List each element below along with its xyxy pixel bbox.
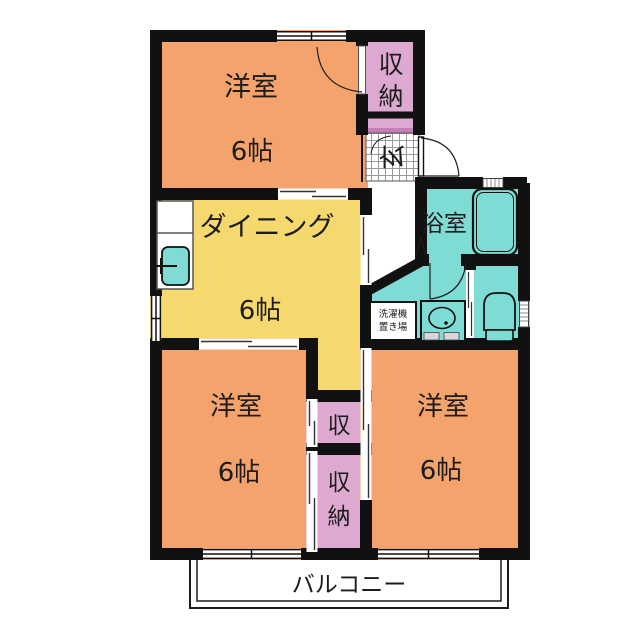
bedroom-top-door-panel bbox=[359, 46, 366, 94]
window-bottom-left bbox=[203, 549, 301, 559]
slide-closet-bottom-door bbox=[307, 451, 318, 552]
bedroom-top-size: 6帖 bbox=[231, 137, 274, 167]
closet-top-label-1: 収 bbox=[378, 50, 403, 79]
washing-machine-area bbox=[370, 302, 416, 340]
bathroom-label: 浴室 bbox=[421, 211, 467, 237]
floor-plan-page: 洋室 6帖 収 納 玄 ダイニング 6帖 浴室 洗濯機 置き場 洋室 6帖 収 … bbox=[0, 0, 640, 640]
slide-closet-mid-door bbox=[307, 399, 318, 447]
slide-bedroomright-door bbox=[361, 348, 372, 500]
laundry-label-1: 洗濯機 bbox=[379, 308, 408, 320]
laundry-label-2: 置き場 bbox=[379, 321, 408, 333]
washbasin bbox=[421, 301, 465, 341]
dining-label: ダイニング bbox=[200, 212, 335, 243]
closet-top-label-2: 納 bbox=[378, 82, 403, 111]
dining-size: 6帖 bbox=[239, 296, 282, 326]
closet-mid-label: 収 bbox=[328, 413, 351, 439]
slide-toilet-door bbox=[466, 270, 474, 338]
window-toilet bbox=[520, 301, 529, 327]
bedroom-left-label: 洋室 bbox=[210, 392, 262, 422]
window-top bbox=[277, 31, 346, 41]
entry-door-leaf bbox=[419, 137, 424, 176]
window-bathroom bbox=[483, 179, 503, 188]
entrance-step-edge bbox=[366, 128, 419, 133]
entrance-label: 玄 bbox=[379, 144, 409, 170]
balcony-label: バルコニー bbox=[292, 572, 407, 598]
bedroom-right-label: 洋室 bbox=[417, 392, 469, 422]
toilet-tank bbox=[486, 330, 513, 341]
toilet bbox=[484, 293, 515, 341]
bedroom-left-size: 6帖 bbox=[218, 458, 261, 488]
bedroom-right-size: 6帖 bbox=[420, 456, 463, 486]
bedroom-top-label: 洋室 bbox=[224, 72, 278, 103]
bedroom-right-area bbox=[360, 338, 530, 560]
entry-door-arc bbox=[421, 138, 459, 176]
slide-dining-bedroomleft bbox=[199, 339, 299, 350]
washbasin-drain bbox=[444, 321, 448, 325]
window-left-kitchen bbox=[151, 296, 161, 341]
closet-bottom-label-1: 収 bbox=[328, 470, 351, 496]
bathtub bbox=[473, 189, 517, 255]
bedroom-left-area bbox=[150, 338, 318, 560]
kitchen-counter bbox=[156, 201, 193, 289]
closet-bottom-label-2: 納 bbox=[328, 504, 351, 530]
slide-dining-hall bbox=[361, 215, 372, 285]
window-bottom-right bbox=[378, 549, 479, 559]
floor-plan-svg: 洋室 6帖 収 納 玄 ダイニング 6帖 浴室 洗濯機 置き場 洋室 6帖 収 … bbox=[0, 0, 640, 640]
bedroom-top-area bbox=[150, 30, 368, 197]
slide-bedroomtop-dining bbox=[278, 189, 348, 200]
